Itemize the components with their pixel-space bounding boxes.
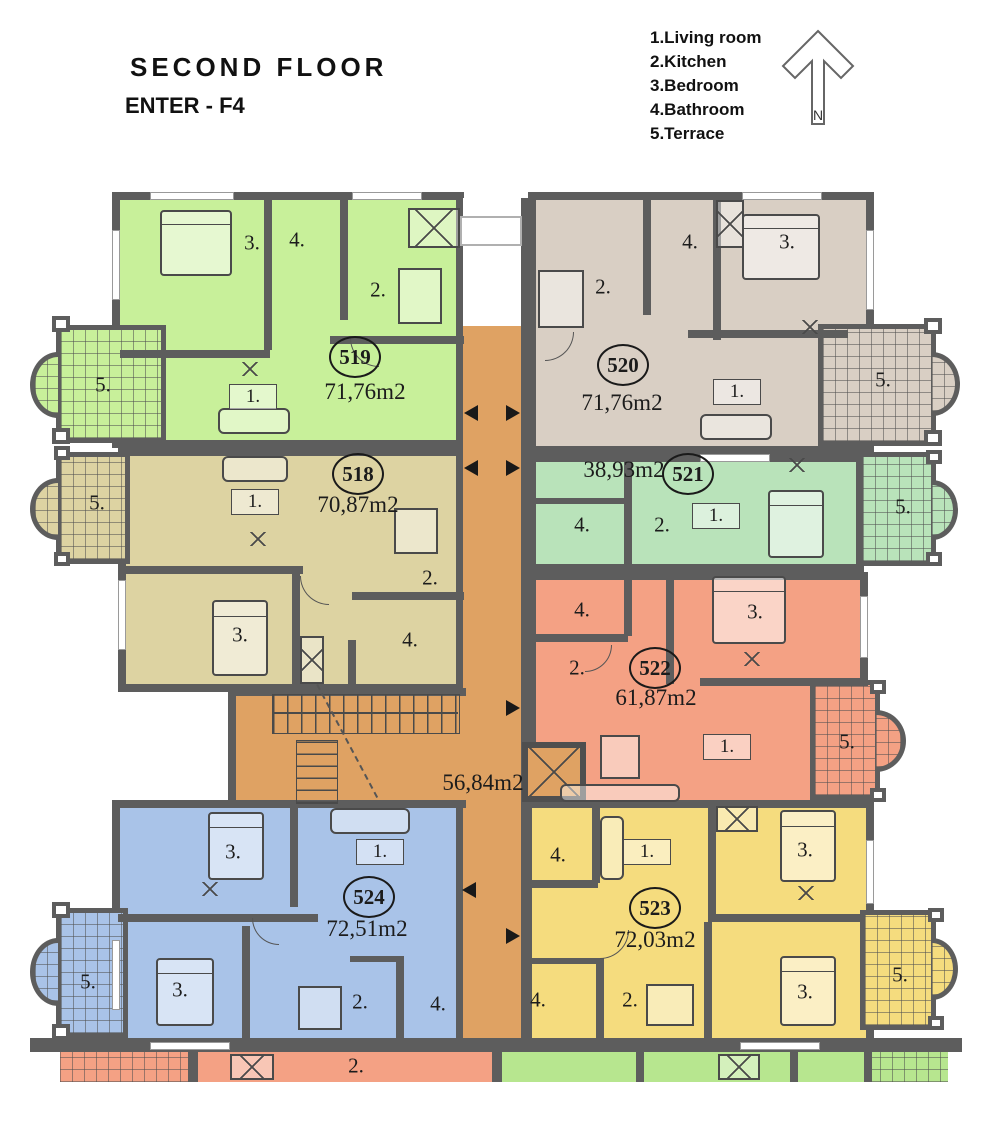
corridor-area-label: 56,84m2	[442, 770, 523, 796]
window-marker	[118, 580, 126, 650]
terrace-label-518: 5.	[89, 491, 105, 516]
area-label-518: 70,87m2	[317, 492, 398, 518]
window-marker	[112, 230, 120, 300]
lower-wall-stub	[492, 1052, 502, 1082]
apartment-number-519: 519	[329, 336, 381, 378]
terrace-524-bay	[30, 938, 58, 1006]
legend-item-bedroom: 3.Bedroom	[650, 74, 761, 98]
lower-floor-terrace	[60, 1052, 190, 1082]
interior-wall	[118, 566, 303, 574]
furniture-bed	[160, 210, 232, 276]
interior-wall	[118, 914, 318, 922]
apartment-number-523: 523	[629, 887, 681, 929]
furniture-shower	[718, 1054, 760, 1080]
area-label-524: 72,51m2	[326, 916, 407, 942]
entrance-niche	[460, 216, 522, 246]
furniture-wardrobe	[408, 208, 460, 248]
furniture-dining-table	[298, 986, 342, 1030]
area-label-523: 72,03m2	[614, 927, 695, 953]
terrace-523-bay	[932, 938, 958, 1000]
interior-wall	[120, 350, 270, 358]
stair-rail	[272, 712, 458, 714]
furniture-wardrobe	[300, 636, 324, 684]
room-label-bedroom-519: 3.	[244, 231, 260, 256]
pillar	[54, 446, 70, 460]
room-label-living-520: 1.	[713, 379, 761, 405]
interior-wall	[264, 200, 272, 350]
window-marker	[150, 192, 234, 200]
interior-wall	[704, 922, 712, 1050]
tv-icon	[742, 652, 762, 666]
apartment-number-522: 522	[629, 647, 681, 689]
tv-icon	[800, 320, 820, 334]
interior-wall	[596, 958, 604, 1050]
room-label-bathroom-524: 4.	[430, 992, 446, 1017]
stairs-upper-flight	[272, 694, 460, 734]
area-label-522: 61,87m2	[615, 685, 696, 711]
room-label-kitchen-522: 2.	[569, 656, 585, 681]
terrace-label-521: 5.	[895, 495, 911, 520]
interior-wall	[708, 914, 860, 922]
window-marker	[866, 230, 874, 310]
pillar	[52, 902, 70, 918]
terrace-label-523: 5.	[892, 963, 908, 988]
interior-wall	[528, 634, 628, 642]
floor-title: SECOND FLOOR	[130, 52, 387, 83]
furniture-dining-table	[600, 735, 640, 779]
room-label-living-518: 1.	[231, 489, 279, 515]
floor-plan: SECOND FLOOR ENTER - F4 1.Living room 2.…	[0, 0, 1000, 1138]
room-label-bathroom-518: 4.	[402, 628, 418, 653]
north-arrow-icon: N	[778, 28, 858, 128]
interior-wall	[624, 572, 632, 636]
tv-icon	[796, 886, 816, 900]
area-label-521: 38,93m2	[583, 457, 664, 483]
window-marker	[860, 596, 868, 658]
legend-item-bathroom: 4.Bathroom	[650, 98, 761, 122]
room-label-living-521: 1.	[692, 503, 740, 529]
window-marker	[740, 1042, 820, 1050]
door-arrow-right-icon	[506, 405, 520, 421]
furniture-sofa	[222, 456, 288, 482]
legend: 1.Living room 2.Kitchen 3.Bedroom 4.Bath…	[650, 26, 761, 146]
interior-wall	[532, 498, 624, 504]
north-label: N	[813, 107, 823, 123]
enter-label: ENTER - F4	[125, 93, 245, 119]
room-label-kitchen-519: 2.	[370, 278, 386, 303]
terrace-522-bay	[876, 710, 906, 772]
tv-icon	[240, 362, 260, 376]
window-marker	[352, 192, 422, 200]
lower-wall-stub	[188, 1052, 198, 1082]
room-label-bedroom-522: 3.	[747, 600, 763, 625]
terrace-521-bay	[932, 480, 958, 540]
apartment-number-520: 520	[597, 344, 649, 386]
window-marker	[700, 454, 770, 462]
room-label-living-519: 1.	[229, 384, 277, 410]
legend-item-living: 1.Living room	[650, 26, 761, 50]
furniture-dining-table	[646, 984, 694, 1026]
furniture-bed	[768, 490, 824, 558]
room-label-bedroom2-523: 3.	[797, 980, 813, 1005]
room-label-living-522: 1.	[703, 734, 751, 760]
apartment-number-524: 524	[343, 876, 395, 918]
pillar	[924, 430, 942, 446]
room-label-bedroom-518: 3.	[232, 623, 248, 648]
door-arrow-right-icon	[506, 700, 520, 716]
furniture-sofa	[600, 816, 624, 880]
furniture-dining-table	[398, 268, 442, 324]
interior-wall	[528, 958, 604, 964]
lower-floor-terrace-right	[868, 1052, 948, 1082]
pillar	[52, 316, 70, 332]
room-label-bathroom-521: 4.	[574, 513, 590, 538]
room-label-bedroom1-524: 3.	[225, 840, 241, 865]
interior-wall	[352, 592, 464, 600]
room-label-kitchen-520: 2.	[595, 275, 611, 300]
pillar	[870, 680, 886, 694]
window-marker	[742, 192, 822, 200]
door-arrow-left-icon	[464, 460, 478, 476]
terrace-label-522: 5.	[839, 730, 855, 755]
terrace-520-bay	[932, 352, 960, 416]
area-label-519: 71,76m2	[324, 379, 405, 405]
lower-floor-kitchen-label: 2.	[348, 1054, 364, 1079]
pillar	[928, 908, 944, 922]
room-label-bedroom-520: 3.	[779, 230, 795, 255]
room-label-kitchen-523: 2.	[622, 988, 638, 1013]
interior-wall	[290, 805, 298, 907]
furniture-sofa	[560, 784, 680, 802]
room-label-bathroom2-523: 4.	[530, 988, 546, 1013]
room-label-kitchen-518: 2.	[422, 566, 438, 591]
terrace-label-519: 5.	[95, 373, 111, 398]
door-arrow-left-icon	[464, 405, 478, 421]
window-marker	[112, 940, 120, 1010]
pillar	[54, 552, 70, 566]
terrace-519	[56, 325, 166, 443]
room-label-bathroom-520: 4.	[682, 230, 698, 255]
window-marker	[866, 840, 874, 904]
door-arrow-right-icon	[506, 460, 520, 476]
area-label-520: 71,76m2	[581, 390, 662, 416]
room-label-living-524: 1.	[356, 839, 404, 865]
furniture-sofa	[330, 808, 410, 834]
furniture-wardrobe	[716, 200, 744, 248]
room-label-bedroom2-524: 3.	[172, 978, 188, 1003]
room-label-living-523: 1.	[623, 839, 671, 865]
pillar	[52, 428, 70, 444]
lower-wall-stub	[864, 1052, 872, 1082]
lower-floor-rooms-right	[496, 1052, 868, 1082]
lower-wall-stub	[790, 1052, 798, 1082]
interior-wall	[242, 926, 250, 1042]
interior-wall	[700, 678, 868, 686]
terrace-519-bay	[30, 352, 58, 418]
terrace-518-bay	[30, 478, 58, 540]
room-label-bathroom1-523: 4.	[550, 843, 566, 868]
furniture-wardrobe	[716, 806, 758, 832]
interior-wall	[708, 805, 716, 915]
room-label-kitchen-521: 2.	[654, 513, 670, 538]
apartment-number-518: 518	[332, 453, 384, 495]
interior-wall	[643, 200, 651, 315]
legend-item-terrace: 5.Terrace	[650, 122, 761, 146]
interior-wall	[396, 956, 404, 1050]
pillar	[870, 788, 886, 802]
room-label-kitchen-524: 2.	[352, 990, 368, 1015]
furniture-dining-table	[538, 270, 584, 328]
pillar	[924, 318, 942, 334]
pillar	[926, 450, 942, 464]
stairs-lower-flight	[296, 740, 338, 804]
terrace-label-524: 5.	[80, 970, 96, 995]
interior-wall	[350, 956, 404, 962]
interior-wall	[348, 640, 356, 692]
room-label-bathroom-522: 4.	[574, 598, 590, 623]
tv-icon	[200, 882, 220, 896]
room-label-bathroom-519: 4.	[289, 228, 305, 253]
pillar	[928, 1016, 944, 1030]
furniture-shower	[230, 1054, 274, 1080]
pillar	[926, 552, 942, 566]
apartment-number-521: 521	[662, 453, 714, 495]
furniture-sofa	[700, 414, 772, 440]
door-arrow-right-icon	[506, 928, 520, 944]
interior-wall	[340, 200, 348, 320]
door-arrow-left-icon	[462, 882, 476, 898]
window-marker	[150, 1042, 230, 1050]
interior-wall	[592, 805, 600, 883]
tv-icon	[787, 458, 807, 472]
interior-wall	[688, 330, 848, 338]
lower-wall-stub	[636, 1052, 644, 1082]
room-label-bedroom1-523: 3.	[797, 838, 813, 863]
furniture-dining-table	[394, 508, 438, 554]
legend-item-kitchen: 2.Kitchen	[650, 50, 761, 74]
tv-icon	[248, 532, 268, 546]
interior-wall	[528, 880, 598, 888]
terrace-label-520: 5.	[875, 368, 891, 393]
interior-wall	[292, 572, 300, 692]
furniture-sofa	[218, 408, 290, 434]
